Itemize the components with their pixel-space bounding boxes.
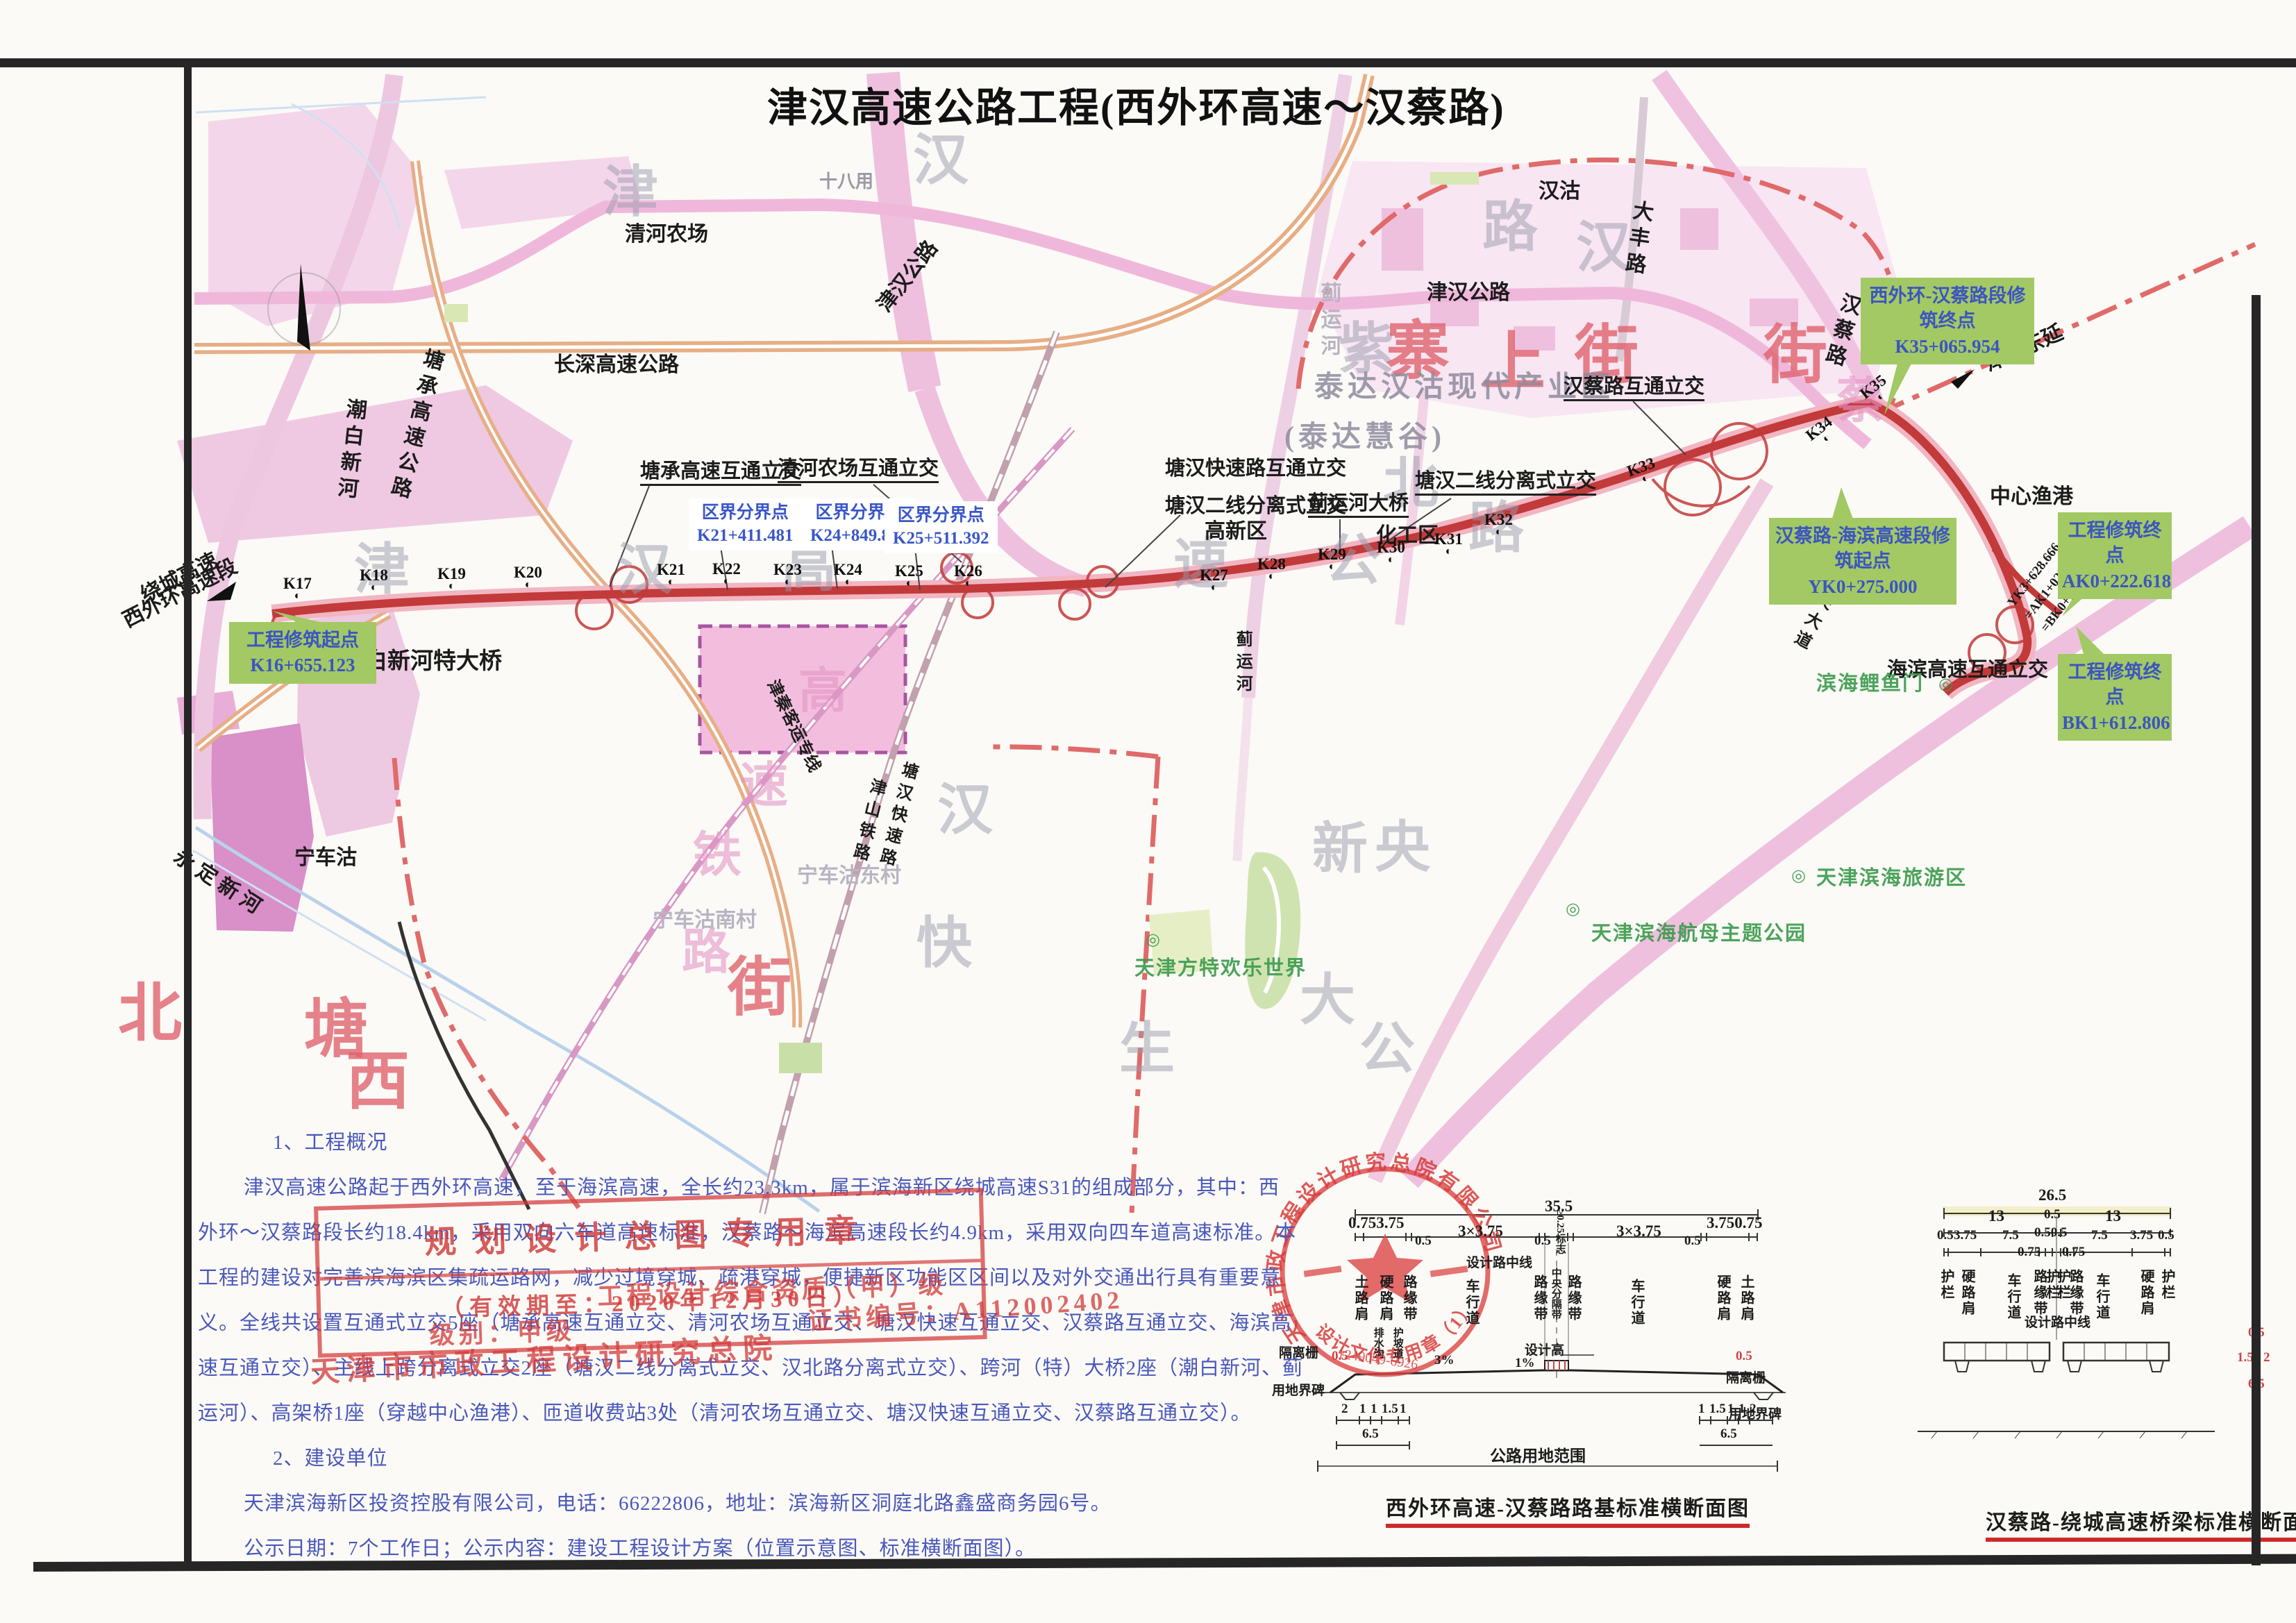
km-k26: K26 ◐ [954, 562, 982, 587]
km-k18: K18 ◐ [360, 566, 388, 591]
secL-bd5: 1 [1400, 1402, 1407, 1416]
secR-lane-9: 硬路肩 [2138, 1269, 2153, 1317]
ic-hancai: 汉蔡路互通立交 [1564, 376, 1704, 401]
km-k25: K25 ◐ [895, 562, 923, 587]
km-k30: K30 ◐ [1377, 539, 1405, 564]
km-k22: K22 ◐ [712, 560, 741, 585]
km-k27: K27 ◐ [1200, 566, 1228, 591]
km-marker-icon: ◐ [834, 579, 862, 586]
jinhan-road-2: 津汉公路 [1427, 282, 1510, 304]
wm-bei-r: 北 [118, 980, 182, 1048]
ic-tanghan-erxian: 塘汉二线分离式立交 [1165, 496, 1346, 516]
district-boundary-value: K21+411.481 [697, 525, 794, 548]
secR-lane-7: 路缘带 [2068, 1269, 2082, 1317]
validity-stamp: 规划设计总图专用章 （有效期至：2020年12月30日） [314, 1188, 987, 1358]
liyumen-icon: ◎ [1938, 676, 1954, 693]
km-marker-icon: ◐ [283, 593, 312, 600]
jiyunhe-river-2: 蓟运河 [1233, 630, 1250, 697]
secL-lane-1: 土路肩 [1352, 1275, 1367, 1322]
secL-d1: 0.753.75 [1348, 1215, 1405, 1231]
page-title: 津汉高速公路工程(西外环高速～汉蔡路) [767, 75, 1505, 133]
wm-xin: 新 [1312, 821, 1368, 879]
secL-lane-6: 中央分隔带 [1550, 1268, 1561, 1320]
poi-liyumen: 滨海鲤鱼门 [1816, 673, 1924, 694]
secR-total: 26.5 [2038, 1187, 2066, 1204]
km-marker-icon: ◐ [514, 582, 542, 589]
km-marker-icon: ◐ [1434, 548, 1463, 555]
hangmu-icon: ◎ [1566, 901, 1582, 918]
secR-lane-1: 护栏 [1938, 1269, 1953, 1301]
secR-r3: 7.5 [2002, 1229, 2019, 1243]
wm-sheng: 生 [1119, 1020, 1175, 1079]
jiyunhe-river: 蓟运河 [1318, 282, 1340, 361]
secL-lane-7: 路缘带 [1566, 1275, 1580, 1322]
chainage-callout-value: K35+065.954 [1865, 334, 2030, 359]
wm-han-1: 汉 [913, 132, 969, 190]
secR-r5: 7.5 [2091, 1229, 2108, 1243]
secL-biaozhi: ≥0.25标志 [1554, 1209, 1565, 1254]
secR-lane-10: 护栏 [2159, 1269, 2174, 1301]
wm-han-4: 汉 [937, 782, 993, 840]
secL-d2: 0.5 [1415, 1234, 1432, 1248]
secL-lane-9: 硬路肩 [1715, 1275, 1729, 1322]
km-marker-icon: ◐ [1257, 573, 1286, 580]
wm-lu-p: 路 [682, 927, 730, 979]
gb-xwh-end: 西外环-汉蔡路段修筑终点 K35+065.954 [1861, 278, 2034, 364]
km-marker-icon: ◐ [1200, 585, 1228, 591]
secL-bd3: 1 [1371, 1402, 1377, 1416]
secL-lane-3: 路缘带 [1401, 1275, 1416, 1322]
secL-d6: 0.5 [1684, 1234, 1701, 1248]
wm-lu-2: 路 [1482, 199, 1538, 257]
secR-r1: 0.5 [1937, 1229, 1954, 1243]
secR-r2: 3.75 [1954, 1229, 1977, 1243]
wm-tie-p: 铁 [693, 830, 741, 882]
km-marker-icon: ◐ [954, 580, 982, 587]
secL-lane-4: 车行道 [1464, 1279, 1478, 1327]
wm-gong-2: 公 [1359, 1020, 1415, 1079]
wm-kuai: 快 [916, 915, 972, 973]
secL-bd65: 6.5 [1362, 1427, 1379, 1441]
chainage-callout-value: K16+655.123 [233, 653, 372, 678]
taida-huigu: (泰达慧谷) [1284, 422, 1446, 453]
gb-ak-end: 工程修筑终点 AK0+222.618 [2058, 512, 2172, 599]
km-marker-icon: ◐ [360, 585, 388, 591]
wm-yang: 央 [1375, 819, 1430, 877]
wm-jie-2: 街 [1763, 322, 1827, 389]
secL-gelishan-2: 隔离栅 [1726, 1372, 1766, 1386]
secL-lane-2: 硬路肩 [1377, 1275, 1392, 1322]
sheet-border-right [2252, 295, 2261, 1565]
km-marker-icon: ◐ [712, 578, 741, 585]
km-marker-icon: ◐ [1318, 564, 1346, 571]
secR-r6: 3.75 [2130, 1229, 2153, 1243]
secL-d5: 3×3.75 [1616, 1223, 1661, 1240]
wm-gao-p: 高 [798, 666, 847, 718]
wm-jie-3: 街 [728, 955, 791, 1022]
secR-r7: 0.5 [2158, 1229, 2175, 1243]
scanned-sheet: 天津市政工程设计研究总院有限公司 设计文件专用章（1） 津汉高速公路工程(西外环… [0, 0, 2296, 1623]
chainage-callout-value: YK0+275.000 [1773, 574, 1952, 599]
secR-lane-3: 车行道 [2005, 1273, 2020, 1321]
secL-bd10: 2 [1750, 1402, 1757, 1416]
secL-bd65b: 6.5 [1720, 1427, 1737, 1441]
chainage-callout-title: 工程修筑终点 [2062, 518, 2168, 569]
sheet-border-left [184, 58, 192, 1569]
secL-slope1: 1% [1515, 1356, 1535, 1370]
ic-qinghe: 清河农场互通立交 [778, 458, 939, 483]
secL-bd7: 1.5 [1709, 1402, 1726, 1416]
poi-lvyouqu: 天津滨海旅游区 [1816, 868, 1967, 889]
km-k28: K28 ◐ [1257, 555, 1286, 580]
zhongxin-yugang: 中心渔港 [1990, 486, 2073, 508]
ningchegu: 宁车沽 [294, 847, 357, 869]
secL-yongdi: 公路用地范围 [1490, 1448, 1586, 1465]
note-l7: 运河）、高架桥1座（穿越中心渔港）、匝道收费站3处（清河农场互通立交、塘汉快速互… [198, 1397, 1303, 1442]
secL-d4: 0.5 [1534, 1234, 1551, 1248]
district-boundary-title: 区界分界点 [697, 502, 794, 525]
km-k17: K17 ◐ [283, 575, 312, 600]
chainage-callout-value: AK0+222.618 [2062, 569, 2168, 594]
km-k19: K19 ◐ [437, 565, 466, 590]
secR-lane-2: 硬路肩 [1959, 1269, 1974, 1317]
chainage-callout-title: 工程修筑终点 [2062, 659, 2168, 710]
secL-bd4: 1.5 [1382, 1402, 1398, 1416]
km-marker-icon: ◐ [437, 583, 466, 590]
ic-tanghan-erxian-2: 塘汉二线分离式立交 [1415, 471, 1596, 496]
km-k23: K23 ◐ [773, 561, 802, 586]
secR-r9: 0.75 [2062, 1245, 2085, 1259]
gb-hc-start: 汉蔡路-海滨高速段修筑起点 YK0+275.000 [1769, 518, 1956, 605]
wm-su-p: 速 [739, 761, 788, 812]
qinghe-farm: 清河农场 [625, 224, 708, 246]
secL-bd2: 1 [1359, 1402, 1366, 1416]
wm-xi-r: 西 [346, 1048, 410, 1116]
km-marker-icon: ◐ [1484, 529, 1513, 536]
secR-centerline: 设计路中线 [2025, 1316, 2090, 1330]
chainage-callout-value: BK1+612.806 [2062, 710, 2168, 735]
secL-bd8: 1 [1727, 1402, 1734, 1416]
secL-bd1: 2 [1341, 1402, 1348, 1416]
km-k20: K20 ◐ [514, 564, 542, 589]
wm-jin-1: 津 [603, 164, 658, 222]
gaoxinqu: 高新区 [1205, 521, 1267, 543]
km-marker-icon: ◐ [657, 579, 685, 586]
gb-start: 工程修筑起点 K16+655.123 [229, 622, 376, 684]
km-marker-icon: ◐ [773, 579, 802, 586]
secR-05: 0.5 [2044, 1208, 2061, 1222]
chainage-callout-title: 汉蔡路-海滨高速段修筑起点 [1773, 523, 1952, 574]
secR-lane-8: 车行道 [2094, 1273, 2109, 1321]
secL-centerline-1: 设计路中线 [1466, 1256, 1532, 1270]
secL-bd6: 1 [1698, 1402, 1705, 1416]
secL-lane-10: 土路肩 [1738, 1275, 1753, 1322]
note-h1: 1、工程概况 [198, 1126, 1303, 1171]
hangu: 汉沽 [1539, 180, 1580, 203]
district-boundary-value: K25+511.392 [893, 528, 989, 550]
km-k29: K29 ◐ [1318, 546, 1346, 571]
secR-13b: 13 [2105, 1208, 2121, 1225]
secL-lane-8: 车行道 [1629, 1279, 1643, 1327]
km-k24: K24 ◐ [834, 561, 862, 586]
secR-title: 汉蔡路-绕城高速桥梁标准横断面图 [1986, 1512, 2296, 1542]
sheet-border-top [0, 58, 2296, 67]
gb-bk-end: 工程修筑终点 BK1+612.806 [2058, 654, 2172, 741]
poi-hangmu: 天津滨海航母主题公园 [1591, 923, 1807, 944]
fangte-icon: ◎ [1146, 932, 1162, 949]
secR-13a: 13 [1988, 1208, 2004, 1225]
chainage-callout-title: 工程修筑起点 [233, 628, 372, 653]
changshen-expwy: 长深高速公路 [554, 354, 679, 376]
secL-title: 西外环高速-汉蔡路路基标准横断面图 [1386, 1498, 1750, 1528]
bb-k25: 区界分界点 K25+511.392 [885, 501, 998, 553]
secL-lane-5: 路缘带 [1532, 1275, 1546, 1322]
km-marker-icon: ◐ [895, 580, 923, 587]
wm-da: 大 [1300, 972, 1355, 1030]
lvyouqu-icon: ◎ [1791, 868, 1807, 885]
km-marker-icon: ◐ [1377, 557, 1405, 564]
ningchegu-nan: 宁车沽南村 [653, 909, 757, 932]
secL-d7: 3.750.75 [1707, 1215, 1763, 1231]
note-l9: 天津滨海新区投资控股有限公司，电话：66222806，地址：滨海新区洞庭北路鑫盛… [198, 1487, 1303, 1532]
secL-d3: 3×3.75 [1458, 1223, 1503, 1240]
bb-k21: 区界分界点 K21+411.481 [689, 498, 802, 550]
km-k31: K31 ◐ [1434, 530, 1463, 555]
secR-r4: 0.50.5 [2034, 1226, 2068, 1240]
note-h2: 2、建设单位 [198, 1442, 1303, 1487]
chainage-callout-title: 西外环-汉蔡路段修筑终点 [1865, 283, 2030, 334]
km-k32: K32 ◐ [1484, 511, 1513, 536]
district-boundary-title: 区界分界点 [893, 505, 989, 528]
secL-bd9: 1 [1738, 1402, 1745, 1416]
ic-tanghan-kuai: 塘汉快速路互通立交 [1165, 458, 1346, 479]
secR-r8: 0.75 [2018, 1245, 2041, 1259]
shibayong: 十八用 [819, 172, 873, 191]
secL-slope3: 3% [1434, 1354, 1455, 1368]
secL-05red-2: 0.5 [1736, 1349, 1752, 1363]
km-k21: K21 ◐ [657, 561, 685, 586]
poi-fangte: 天津方特欢乐世界 [1134, 958, 1307, 979]
